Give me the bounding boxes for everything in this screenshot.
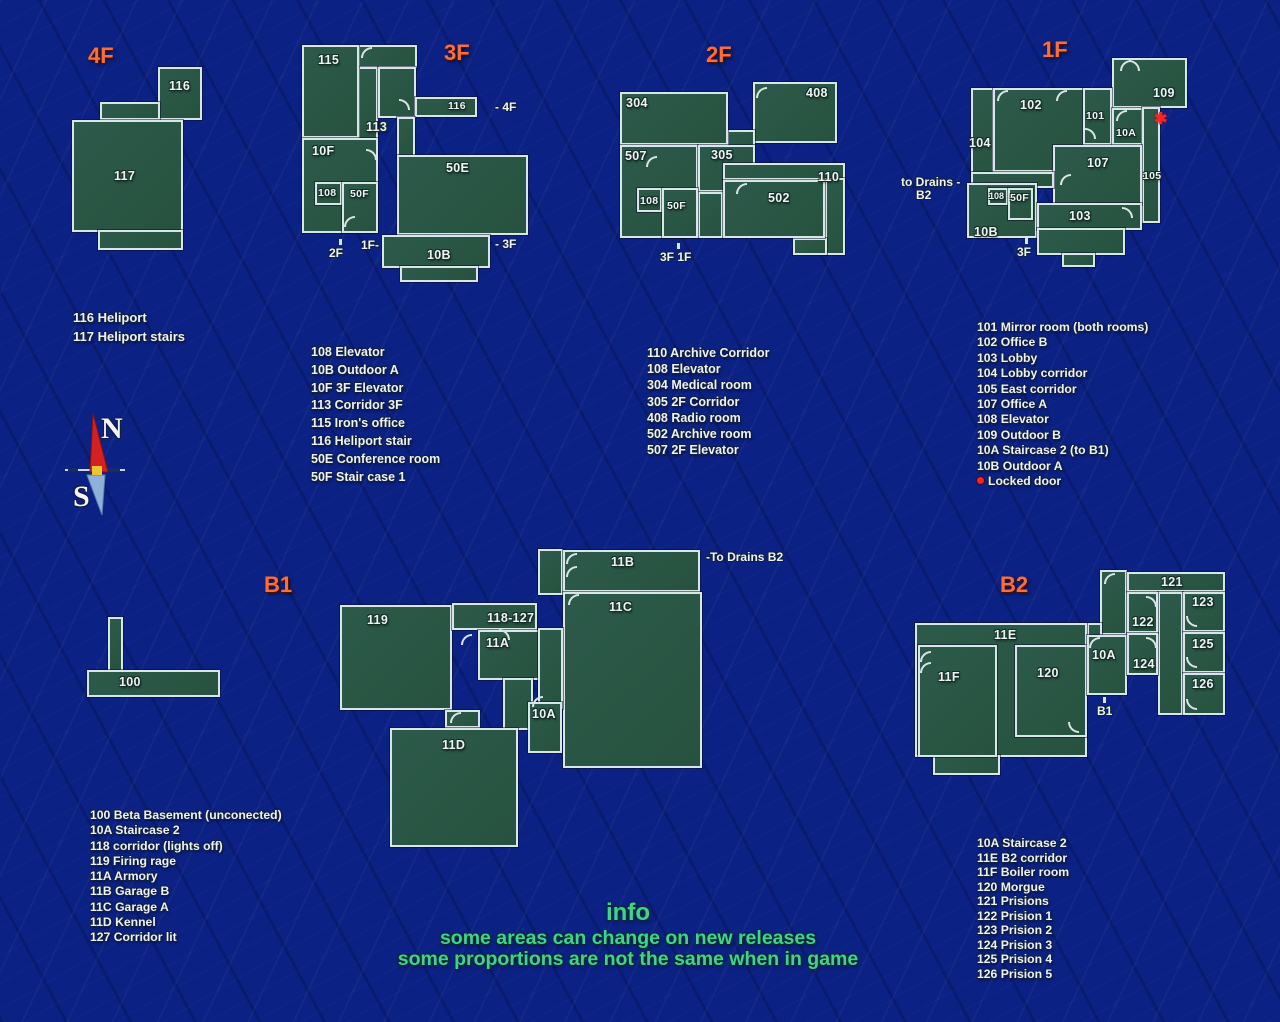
tick-mark [339,239,342,245]
room-3f-connector [397,117,415,157]
room-1f-103-tab [1062,253,1095,267]
room-b1-100-stem [108,617,123,672]
room-b1-119 [340,605,452,710]
legend-item: 108 Elevator [311,344,440,362]
room-label-b1-118-127: 118-127 [487,612,534,625]
room-b2-corridor-right [1158,592,1183,715]
room-label-1f-10b: 10B [974,226,998,239]
floor-title-b1: B1 [264,574,292,596]
annotation-to-4f: - 4F [495,101,516,113]
room-label-3f-50e: 50E [446,162,469,175]
legend-item: 507 2F Elevator [647,442,770,458]
legend-item: 107 Office A [977,397,1148,412]
legend-item: 125 Prision 4 [977,952,1069,967]
compass-center [92,466,102,475]
legend-item-locked: Locked door [977,474,1148,489]
legend-item: 10A Staircase 2 [90,823,282,838]
legend-item: 50E Conference room [311,451,440,469]
door-icon [461,634,472,645]
locked-door-dot [977,477,984,484]
room-2f-305-corridor [698,192,723,238]
room-label-2f-408: 408 [806,87,828,100]
room-label-b2-124: 124 [1133,658,1155,671]
legend-item: 108 Elevator [977,412,1148,427]
legend-item: 10B Outdoor A [311,362,440,380]
legend-item: 103 Lobby [977,351,1148,366]
info-block: info some areas can change on new releas… [328,899,928,971]
legend-item: 502 Archive room [647,426,770,442]
legend-item: 50F Stair case 1 [311,469,440,487]
room-label-2f-50f: 50F [667,201,686,212]
legend-3f: 108 Elevator 10B Outdoor A 10F 3F Elevat… [311,344,440,486]
legend-item: 305 2F Corridor [647,394,770,410]
legend-item: 11D Kennel [90,915,282,930]
room-label-3f-10b: 10B [427,249,451,262]
room-label-3f-115: 115 [318,54,339,67]
legend-item: 120 Morgue [977,880,1069,895]
room-b1-100-bar [87,670,220,697]
legend-item: 123 Prision 2 [977,923,1069,938]
legend-item: 10F 3F Elevator [311,380,440,398]
room-label-b2-121: 121 [1161,576,1183,589]
room-label-1f-102: 102 [1020,99,1042,112]
room-label-b2-10a: 10A [1092,649,1116,662]
legend-item: 109 Outdoor B [977,428,1148,443]
legend-item: 115 Iron's office [311,415,440,433]
locked-door-label: Locked door [988,474,1061,488]
legend-item: 10B Outdoor A [977,459,1148,474]
room-label-b2-126: 126 [1192,678,1214,691]
annotation-to-3f: - 3F [495,238,516,250]
room-label-1f-107: 107 [1087,157,1109,170]
info-line-1: some areas can change on new releases [328,928,928,950]
legend-item: 104 Lobby corridor [977,366,1148,381]
compass-north-label: N [101,414,123,444]
legend-item: 110 Archive Corridor [647,345,770,361]
room-3f-116-arm [415,97,477,117]
annotation-to-drains: to Drains - [901,176,960,188]
room-label-3f-113: 113 [366,121,387,134]
legend-item: 127 Corridor lit [90,930,282,945]
room-4f-116 [158,67,202,120]
room-label-2f-507: 507 [625,150,647,163]
annotation-to-2f: 2F [329,247,343,259]
room-label-b2-11e: 11E [994,629,1016,642]
room-label-b2-11f: 11F [938,671,960,684]
floor-title-2f: 2F [706,44,732,66]
legend-2f: 110 Archive Corridor 108 Elevator 304 Me… [647,345,770,458]
room-2f-110-right [825,178,845,255]
legend-item: 408 Radio room [647,410,770,426]
info-title: info [328,899,928,928]
room-label-1f-109: 109 [1153,87,1175,100]
room-label-1f-108: 108 [989,192,1004,201]
floor-title-1f: 1F [1042,39,1068,61]
floor-title-b2: B2 [1000,574,1028,596]
annotation-to-3f-1f: 3F 1F [660,251,691,263]
room-label-b1-10a: 10A [532,708,556,721]
room-4f-117-tab [98,230,183,250]
annotation-to-3f: 3F [1017,246,1031,258]
legend-item: 122 Prision 1 [977,909,1069,924]
legend-item: 11E B2 corridor [977,851,1069,866]
legend-item: 304 Medical room [647,377,770,393]
legend-item: 108 Elevator [647,361,770,377]
room-label-b1-11d: 11D [442,739,465,752]
legend-item: 117 Heliport stairs [73,327,185,346]
floor-title-4f: 4F [88,45,114,67]
legend-item: 126 Prision 5 [977,967,1069,982]
room-label-b1-11a: 11A [486,637,509,650]
room-label-2f-108: 108 [640,196,658,207]
compass-south-label: S [73,482,90,512]
annotation-to-b1: B1 [1097,705,1112,717]
legend-item: 119 Firing rage [90,854,282,869]
room-label-3f-50f: 50F [350,189,369,200]
legend-item: 10A Staircase 2 (to B1) [977,443,1148,458]
room-label-b2-123: 123 [1192,596,1214,609]
room-b1-corridor-top [538,549,563,595]
room-label-2f-304: 304 [626,97,648,110]
room-label-3f-116: 116 [448,101,466,112]
annotation-to-drains-b2: -To Drains B2 [706,551,783,563]
legend-item: 121 Prisions [977,894,1069,909]
room-label-1f-101: 101 [1086,111,1104,122]
locked-door-marker: ✱ [1154,112,1167,128]
legend-item: 124 Prision 3 [977,938,1069,953]
room-b2-11e-tab [933,755,1000,775]
legend-b2: 10A Staircase 2 11E B2 corridor 11F Boil… [977,836,1069,981]
legend-item: 105 East corridor [977,382,1148,397]
room-label-2f-502: 502 [768,192,790,205]
facility-map: 4F 116 117 116 Heliport 117 Heliport sta… [0,0,1280,1022]
annotation-to-1f: 1F- [361,239,379,251]
room-b1-11c [563,592,702,768]
legend-item: 10A Staircase 2 [977,836,1069,851]
room-3f-113-room [378,67,416,118]
room-label-2f-305: 305 [711,149,733,162]
room-1f-103-lower [1037,228,1125,255]
tick-mark [1103,697,1106,703]
room-4f-116-step [100,102,160,120]
legend-item: 113 Corridor 3F [311,397,440,415]
legend-4f: 116 Heliport 117 Heliport stairs [73,308,185,346]
legend-item: 101 Mirror room (both rooms) [977,320,1148,335]
legend-item: 11C Garage A [90,900,282,915]
floor-title-3f: 3F [444,42,470,64]
room-2f-110-bottom [793,238,827,255]
legend-item: 11F Boiler room [977,865,1069,880]
room-label-b2-120: 120 [1037,667,1059,680]
legend-item: 11A Armory [90,869,282,884]
room-label-1f-104: 104 [969,137,991,150]
room-label-b2-125: 125 [1192,638,1214,651]
legend-1f: 101 Mirror room (both rooms) 102 Office … [977,320,1148,489]
room-label-2f-110: 110 [818,171,839,184]
info-line-2: some proportions are not the same when i… [328,949,928,971]
room-label-3f-10f: 10F [312,145,334,158]
room-label-b1-100: 100 [119,676,141,689]
legend-item: 118 corridor (lights off) [90,839,282,854]
tick-mark [1025,238,1028,244]
legend-item: 100 Beta Basement (unconected) [90,808,282,823]
tick-mark [677,243,680,249]
room-label-4f-116: 116 [169,80,190,93]
room-3f-10b-tab [400,266,478,282]
room-label-1f-105: 105 [1143,171,1161,182]
legend-item: 116 Heliport stair [311,433,440,451]
room-label-3f-108: 108 [318,188,336,199]
room-2f-50f [662,188,698,238]
door-icon [532,696,543,707]
legend-item: 11B Garage B [90,884,282,899]
legend-b1: 100 Beta Basement (unconected) 10A Stair… [90,808,282,946]
room-label-b1-119: 119 [367,614,388,627]
room-label-1f-10a: 10A [1116,128,1136,139]
room-label-b2-122: 122 [1132,616,1154,629]
room-label-b1-11c: 11C [609,601,632,614]
room-label-1f-103: 103 [1069,210,1091,223]
legend-item: 116 Heliport [73,308,185,327]
room-label-4f-117: 117 [114,170,135,183]
legend-item: 102 Office B [977,335,1148,350]
room-label-b1-11b: 11B [611,556,634,569]
room-label-1f-50f: 50F [1010,193,1029,204]
annotation-to-drains-b2: B2 [916,189,931,201]
